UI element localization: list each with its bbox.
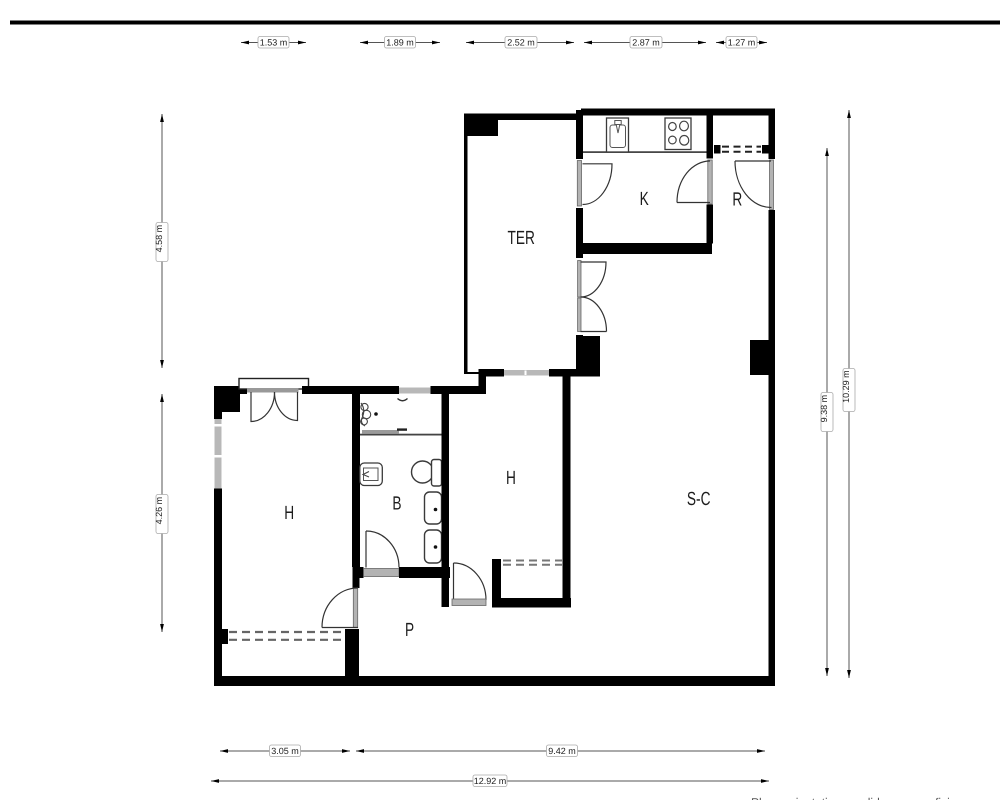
svg-text:10.29 m: 10.29 m	[841, 370, 851, 403]
svg-text:P: P	[405, 620, 414, 641]
svg-text:2.87 m: 2.87 m	[632, 37, 660, 47]
svg-text:R: R	[732, 190, 742, 211]
svg-text:12.92 m: 12.92 m	[474, 776, 507, 786]
svg-text:K: K	[640, 189, 649, 210]
svg-text:H: H	[284, 503, 294, 524]
svg-text:Plano orientativo: medidas y s: Plano orientativo: medidas y superficies…	[751, 796, 999, 800]
svg-text:S-C: S-C	[687, 489, 711, 510]
svg-text:1.89 m: 1.89 m	[386, 37, 414, 47]
svg-text:1.53 m: 1.53 m	[260, 37, 288, 47]
svg-text:3.05 m: 3.05 m	[271, 746, 299, 756]
svg-text:9.42 m: 9.42 m	[548, 746, 576, 756]
svg-text:4.26 m: 4.26 m	[154, 497, 164, 525]
svg-text:TER: TER	[508, 228, 535, 249]
svg-text:H: H	[506, 468, 516, 489]
svg-text:4.58 m: 4.58 m	[154, 225, 164, 253]
svg-text:2.52 m: 2.52 m	[507, 37, 535, 47]
svg-text:B: B	[392, 493, 401, 514]
svg-text:1.27 m: 1.27 m	[728, 37, 756, 47]
svg-text:9.38 m: 9.38 m	[819, 395, 829, 423]
